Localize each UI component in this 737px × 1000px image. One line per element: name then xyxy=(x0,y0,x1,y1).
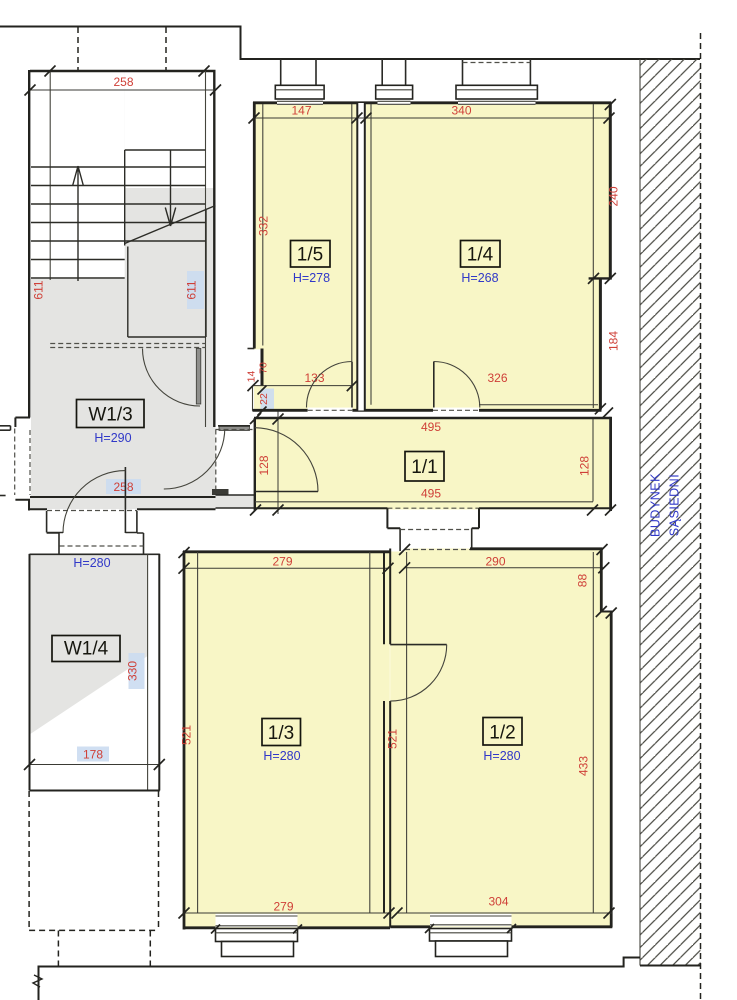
svg-text:340: 340 xyxy=(451,104,471,118)
svg-text:279: 279 xyxy=(273,900,293,914)
svg-text:14: 14 xyxy=(246,371,258,383)
svg-text:521: 521 xyxy=(386,729,400,749)
svg-text:178: 178 xyxy=(83,748,103,762)
svg-text:H=280: H=280 xyxy=(263,749,300,763)
svg-text:H=280: H=280 xyxy=(73,556,110,570)
svg-text:1/4: 1/4 xyxy=(467,245,494,266)
svg-text:1/2: 1/2 xyxy=(489,723,515,744)
svg-text:88: 88 xyxy=(576,574,590,588)
svg-text:BUDYNEK: BUDYNEK xyxy=(649,473,663,537)
svg-text:1/3: 1/3 xyxy=(268,723,294,744)
svg-text:433: 433 xyxy=(577,756,591,776)
svg-text:128: 128 xyxy=(257,455,271,475)
svg-text:H=268: H=268 xyxy=(461,271,498,285)
svg-text:H=280: H=280 xyxy=(483,749,520,763)
svg-text:184: 184 xyxy=(607,331,621,351)
svg-text:H=278: H=278 xyxy=(293,271,330,285)
svg-text:326: 326 xyxy=(487,371,507,385)
svg-text:521: 521 xyxy=(180,725,194,745)
svg-text:240: 240 xyxy=(607,186,621,206)
svg-text:70: 70 xyxy=(258,362,270,374)
svg-text:495: 495 xyxy=(421,420,441,434)
svg-text:258: 258 xyxy=(113,75,133,89)
svg-text:290: 290 xyxy=(485,555,505,569)
svg-text:22: 22 xyxy=(258,393,270,405)
svg-text:611: 611 xyxy=(185,280,199,299)
svg-text:1/5: 1/5 xyxy=(297,245,323,266)
svg-text:332: 332 xyxy=(257,216,271,236)
svg-text:611: 611 xyxy=(32,280,46,299)
svg-text:258: 258 xyxy=(113,480,133,494)
svg-text:W1/4: W1/4 xyxy=(64,639,109,660)
svg-text:147: 147 xyxy=(291,104,311,118)
svg-text:128: 128 xyxy=(578,456,592,476)
svg-text:H=290: H=290 xyxy=(94,431,131,445)
svg-text:495: 495 xyxy=(421,487,441,501)
svg-text:W1/3: W1/3 xyxy=(88,405,132,426)
svg-text:279: 279 xyxy=(272,555,292,569)
svg-text:SĄSIEDNI: SĄSIEDNI xyxy=(668,474,682,536)
svg-text:1/1: 1/1 xyxy=(411,457,437,478)
svg-text:330: 330 xyxy=(126,661,140,681)
svg-text:304: 304 xyxy=(488,895,508,909)
